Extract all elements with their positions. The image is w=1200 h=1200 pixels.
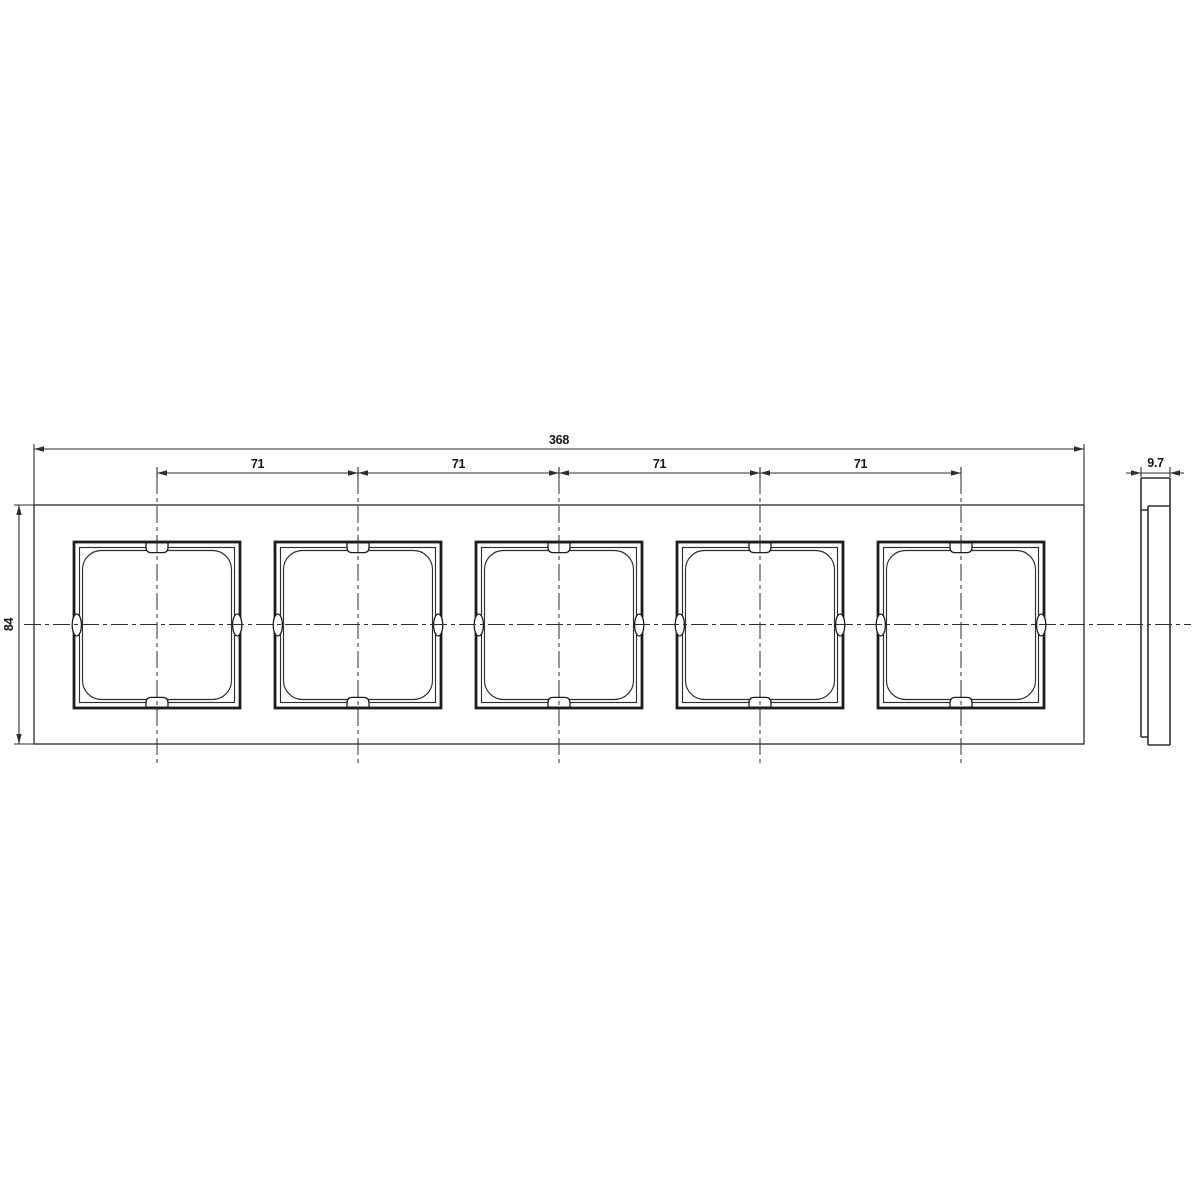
dimension-label-pitch-2: 71 — [452, 457, 466, 471]
side-view — [1141, 478, 1170, 745]
arrowhead — [549, 470, 559, 475]
arrowhead — [760, 470, 770, 475]
arrowhead — [16, 505, 21, 515]
arrowhead — [34, 446, 44, 451]
dimension-pitches: 71 71 71 71 — [157, 457, 961, 478]
arrowhead — [16, 734, 21, 744]
arrowhead — [559, 470, 569, 475]
arrowhead — [1170, 470, 1180, 475]
dimension-label-pitch-1: 71 — [251, 457, 265, 471]
side-profile — [1141, 478, 1170, 745]
dimension-label-height: 84 — [2, 618, 16, 632]
dimension-label-pitch-4: 71 — [854, 457, 868, 471]
drawing-canvas: 368 71 71 71 71 84 9.7 — [0, 0, 1200, 1200]
arrowhead — [157, 470, 167, 475]
arrowhead — [951, 470, 961, 475]
arrowhead — [348, 470, 358, 475]
dimension-label-total-width: 368 — [549, 433, 569, 447]
dimension-label-depth: 9.7 — [1147, 456, 1164, 470]
arrowhead — [1131, 470, 1141, 475]
technical-drawing: 368 71 71 71 71 84 9.7 — [0, 0, 1200, 1200]
centerlines — [24, 477, 1191, 764]
dimension-depth: 9.7 — [1126, 456, 1184, 477]
arrowhead — [1074, 446, 1084, 451]
arrowhead — [358, 470, 368, 475]
arrowhead — [750, 470, 760, 475]
dimension-label-pitch-3: 71 — [653, 457, 667, 471]
